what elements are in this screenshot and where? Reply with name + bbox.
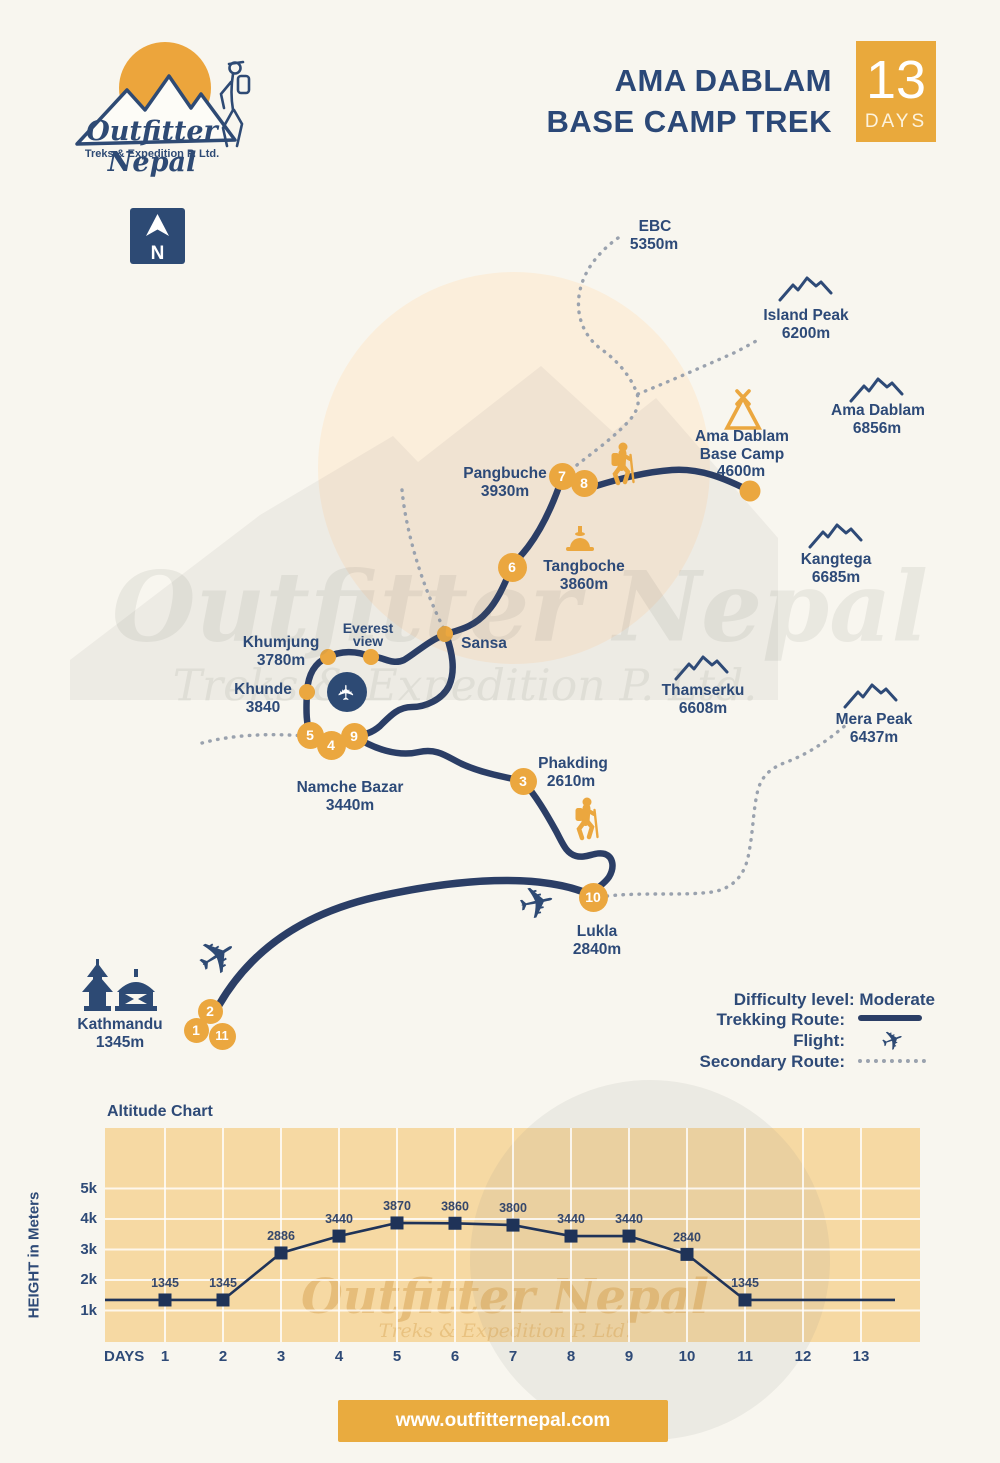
day-label-9: 9 [609, 1348, 649, 1365]
label-tangboche-name: Tangboche [543, 558, 625, 576]
secondary-route-mera [607, 724, 847, 896]
y-tick-3k: 3k [57, 1241, 97, 1258]
data-point-day5 [391, 1216, 404, 1229]
label-ebc-elev: 5350m [630, 236, 678, 254]
label-khumjung-elev: 3780m [257, 652, 305, 670]
island-peak-icon [780, 278, 831, 300]
airport-plane-icon: ✈ [336, 683, 357, 701]
label-adbc-elev: 4600m [717, 463, 765, 481]
legend-flight-label: Flight: [793, 1031, 845, 1051]
hiker-icon-phakding [576, 798, 598, 839]
label-namche-elev: 3440m [326, 797, 374, 815]
label-kathmandu-name: Kathmandu [77, 1016, 162, 1034]
data-label-day10: 2840 [673, 1230, 701, 1244]
day-label-2: 2 [203, 1348, 243, 1365]
label-ama-dablam-elev: 6856m [853, 420, 901, 438]
data-label-day1: 1345 [151, 1276, 179, 1290]
day-label-12: 12 [783, 1348, 823, 1365]
waypoint-6: 6 [498, 553, 527, 582]
secondary-route-west [202, 735, 306, 743]
y-tick-5k: 5k [57, 1180, 97, 1197]
day-label-11: 11 [725, 1348, 765, 1365]
day-label-6: 6 [435, 1348, 475, 1365]
data-point-day6 [449, 1217, 462, 1230]
label-tangboche-elev: 3860m [560, 576, 608, 594]
label-thamserku-elev: 6608m [679, 700, 727, 718]
footer-bar: www.outfitternepal.com [338, 1400, 668, 1442]
chart-title: Altitude Chart [107, 1103, 213, 1121]
day-label-8: 8 [551, 1348, 591, 1365]
y-tick-2k: 2k [57, 1271, 97, 1288]
label-pangbuche-elev: 3930m [481, 483, 529, 501]
mera-peak-icon [845, 685, 896, 707]
data-label-day8: 3440 [557, 1212, 585, 1226]
ama-dablam-peak-icon [851, 379, 902, 401]
tent-icon [727, 391, 759, 428]
label-kangtega-name: Kangtega [801, 551, 872, 569]
dot-base-camp [740, 481, 761, 502]
data-point-day11 [739, 1293, 752, 1306]
altitude-chart: 1345134528863440387038603800344034402840… [105, 1128, 920, 1342]
data-point-day7 [507, 1219, 520, 1232]
secondary-route-island-branch [638, 340, 758, 394]
label-namche-name: Namche Bazar [297, 779, 404, 797]
waypoint-1: 1 [184, 1018, 209, 1043]
day-label-3: 3 [261, 1348, 301, 1365]
data-point-day4 [333, 1230, 346, 1243]
label-lukla-elev: 2840m [573, 941, 621, 959]
waypoint-4: 4 [317, 731, 346, 760]
data-point-day10 [681, 1248, 694, 1261]
label-sansa-name: Sansa [461, 635, 507, 653]
day-label-13: 13 [841, 1348, 881, 1365]
footer-url[interactable]: www.outfitternepal.com [396, 1410, 611, 1431]
label-phakding-name: Phakding [538, 755, 608, 773]
label-ebc-name: EBC [639, 218, 672, 236]
data-label-day7: 3800 [499, 1201, 527, 1215]
waypoint-11: 11 [209, 1023, 236, 1050]
data-point-day3 [275, 1246, 288, 1259]
label-adbc-line2: Base Camp [700, 446, 784, 464]
day-label-4: 4 [319, 1348, 359, 1365]
data-label-day3: 2886 [267, 1229, 295, 1243]
data-label-day5: 3870 [383, 1199, 411, 1213]
label-thamserku-name: Thamserku [662, 682, 745, 700]
poster: Outfitter Nepal Treks & Expedition P. Lt… [0, 0, 1000, 1463]
label-island-peak-elev: 6200m [782, 325, 830, 343]
data-point-day9 [623, 1230, 636, 1243]
day-label-5: 5 [377, 1348, 417, 1365]
temple-icon [82, 959, 157, 1011]
label-kathmandu-elev: 1345m [96, 1034, 144, 1052]
label-kangtega-elev: 6685m [812, 569, 860, 587]
label-khunde-elev: 3840 [246, 699, 280, 717]
data-label-day6: 3860 [441, 1199, 469, 1213]
waypoint-10: 10 [579, 883, 608, 912]
legend-trekking-label: Trekking Route: [717, 1010, 845, 1030]
legend-secondary-label: Secondary Route: [700, 1052, 845, 1072]
chart-y-axis-title: HEIGHT in Meters [26, 1192, 43, 1319]
legend-secondary-line [858, 1059, 926, 1063]
data-label-day4: 3440 [325, 1212, 353, 1226]
label-adbc-line1: Ama Dablam [695, 428, 789, 446]
label-phakding-elev: 2610m [547, 773, 595, 791]
airport-circle: ✈ [327, 672, 367, 712]
label-ama-dablam-name: Ama Dablam [831, 402, 925, 420]
data-point-day1 [159, 1293, 172, 1306]
day-label-1: 1 [145, 1348, 185, 1365]
legend-difficulty: Difficulty level: Moderate [734, 990, 935, 1010]
day-label-7: 7 [493, 1348, 533, 1365]
data-point-day8 [565, 1230, 578, 1243]
waypoint-8: 8 [571, 470, 598, 497]
data-label-day2: 1345 [209, 1276, 237, 1290]
data-label-day9: 3440 [615, 1212, 643, 1226]
label-khumjung-name: Khumjung [243, 634, 320, 652]
waypoint-3: 3 [510, 768, 537, 795]
kangtega-peak-icon [810, 525, 861, 547]
legend-trekking-line [858, 1015, 922, 1021]
y-tick-1k: 1k [57, 1302, 97, 1319]
label-lukla-name: Lukla [577, 923, 617, 941]
day-label-10: 10 [667, 1348, 707, 1365]
label-mera-peak-name: Mera Peak [836, 711, 913, 729]
data-label-day11: 1345 [731, 1276, 759, 1290]
label-mera-peak-elev: 6437m [850, 729, 898, 747]
label-khunde-name: Khunde [234, 681, 292, 699]
label-pangbuche-name: Pangbuche [463, 465, 547, 483]
y-tick-4k: 4k [57, 1210, 97, 1227]
data-point-day2 [217, 1293, 230, 1306]
label-everest-view-line2: view [353, 633, 383, 649]
label-island-peak-name: Island Peak [763, 307, 848, 325]
